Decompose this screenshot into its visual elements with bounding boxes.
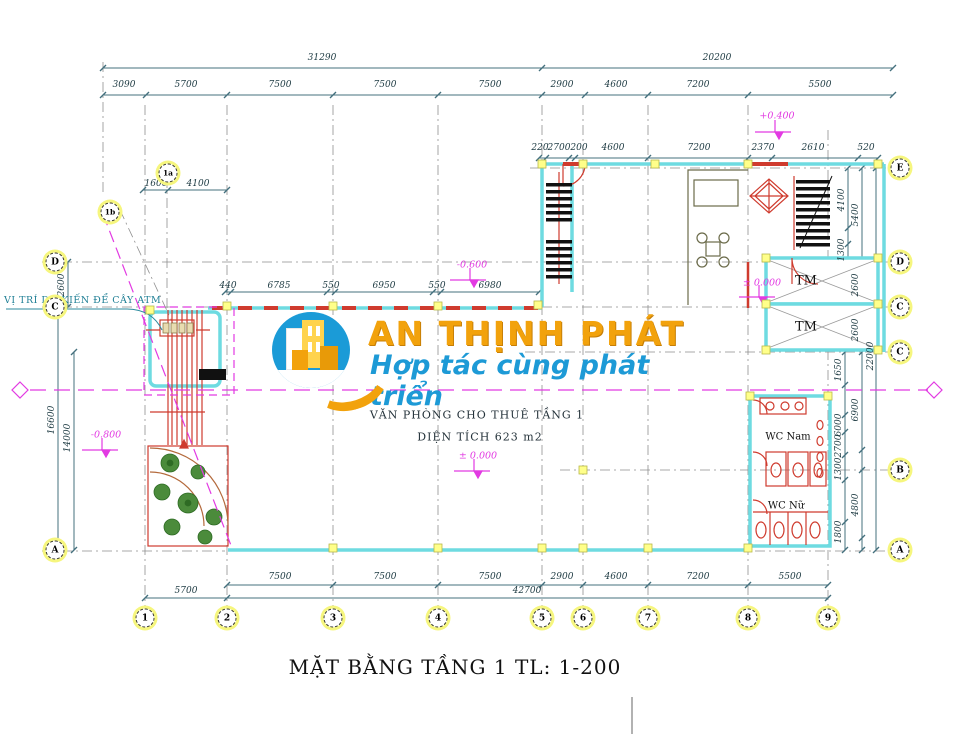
dim-label: 200 [570,143,587,153]
floor-plan-canvas: 31290 20200 3090 5700 7500 7500 7500 290… [0,0,980,735]
grid-bubble-1b: 1b [101,203,120,222]
elevation-label: -0.800 [91,430,121,441]
dim-label: 6900 [851,399,861,422]
dim-label: 4600 [605,80,628,90]
dim-label: 2600 [851,274,861,297]
grid-bubble-7: 7 [639,609,658,628]
dim-label: 5500 [809,80,832,90]
dim-label: 3090 [113,80,136,90]
grid-bubble-4: 4 [429,609,448,628]
dim-label: 2610 [802,143,825,153]
dim-label: 5500 [779,572,802,582]
dim-label: 7200 [687,80,710,90]
grid-bubble-1: 1 [136,609,155,628]
dim-label: 550 [428,281,445,291]
grid-bubble-C2-right: C [891,343,910,362]
grid-bubble-C-right: C [891,298,910,317]
dim-label: 14000 [63,424,73,453]
grid-bubble-9: 9 [819,609,838,628]
grid-bubble-B-right: B [891,461,910,480]
dim-label: 7500 [374,80,397,90]
elevation-label: -0.600 [457,260,487,271]
dim-label: 2600 [851,319,861,342]
grid-bubble-3: 3 [324,609,343,628]
wc-women-label: WC Nữ [768,501,804,512]
grid-bubble-6: 6 [574,609,593,628]
furniture [688,170,748,305]
grid-bubble-8: 8 [739,609,758,628]
dim-label: 42700 [513,586,542,596]
dim-label: 550 [322,281,339,291]
drawing-title: MẶT BẰNG TẦNG 1 TL: 1-200 [289,655,622,679]
dim-label: 5700 [175,80,198,90]
dim-label: 520 [857,143,874,153]
dim-label: 22000 [866,342,876,371]
dim-label: 7500 [479,572,502,582]
dim-label: 1300 [834,458,844,481]
dim-label: 4100 [837,189,847,212]
trees [154,454,222,544]
grid-bubble-D-right: D [891,253,910,272]
dim-label: 2600 [57,274,67,297]
dim-label: 2900 [551,572,574,582]
dim-label: 2900 [551,80,574,90]
elevator-label: TM [795,320,817,335]
dim-label: 7500 [479,80,502,90]
dim-label: 6000 [834,414,844,437]
dim-label: 7500 [374,572,397,582]
dim-label: 440 [219,281,236,291]
dim-label: 6980 [479,281,502,291]
grid-bubble-1a: 1a [159,164,178,183]
dim-label: 2700 [548,143,571,153]
grid-bubble-2: 2 [218,609,237,628]
dim-label: 7200 [688,143,711,153]
dim-label: 4100 [187,179,210,189]
dim-label: 4600 [602,143,625,153]
dim-label: 5400 [851,204,861,227]
grid-bubble-C-left: C [46,298,65,317]
watermark-company-name: AN THỊNH PHÁT [368,314,685,353]
atm-leader-line [6,309,162,330]
dim-label: 7200 [687,572,710,582]
machine-cells [163,323,193,333]
wc-men-label: WC Nam [765,432,810,443]
elevation-label: ± 0.000 [459,451,497,462]
dim-label: 16600 [47,406,57,435]
elevator-label: TM [795,274,817,289]
grid-bubble-A-right: A [891,541,910,560]
dim-label: 1650 [834,359,844,382]
room-area-label: DIỆN TÍCH 623 m2 [417,431,542,444]
dim-label: 2370 [752,143,775,153]
elevation-label: +0.400 [759,111,794,122]
dim-label: 7500 [269,572,292,582]
grid-bubble-A-left: A [46,541,65,560]
dim-label: 31290 [308,53,337,63]
dim-label: 220 [531,143,548,153]
dim-label: 6785 [268,281,291,291]
grid-bubble-5: 5 [533,609,552,628]
grid-bubble-D-left: D [46,253,65,272]
dim-label: 1300 [837,239,847,262]
dim-label: 20200 [703,53,732,63]
elevation-label: ± 0.000 [743,278,781,289]
dim-label: 4800 [851,494,861,517]
watermark: AN THỊNH PHÁT Hợp tác cùng phát triển [272,310,692,392]
dim-label: 7500 [269,80,292,90]
dim-label: 5700 [175,586,198,596]
dim-label: 2700 [834,435,844,458]
dim-label: 4600 [605,572,628,582]
dim-label: 6950 [373,281,396,291]
watermark-slogan: Hợp tác cùng phát triển [370,350,692,412]
grid-bubble-E-right: E [891,159,910,178]
dim-label: 1800 [834,521,844,544]
atm-note-label: VỊ TRÍ DỰ KIẾN ĐỂ CÂY ATM [4,295,161,306]
